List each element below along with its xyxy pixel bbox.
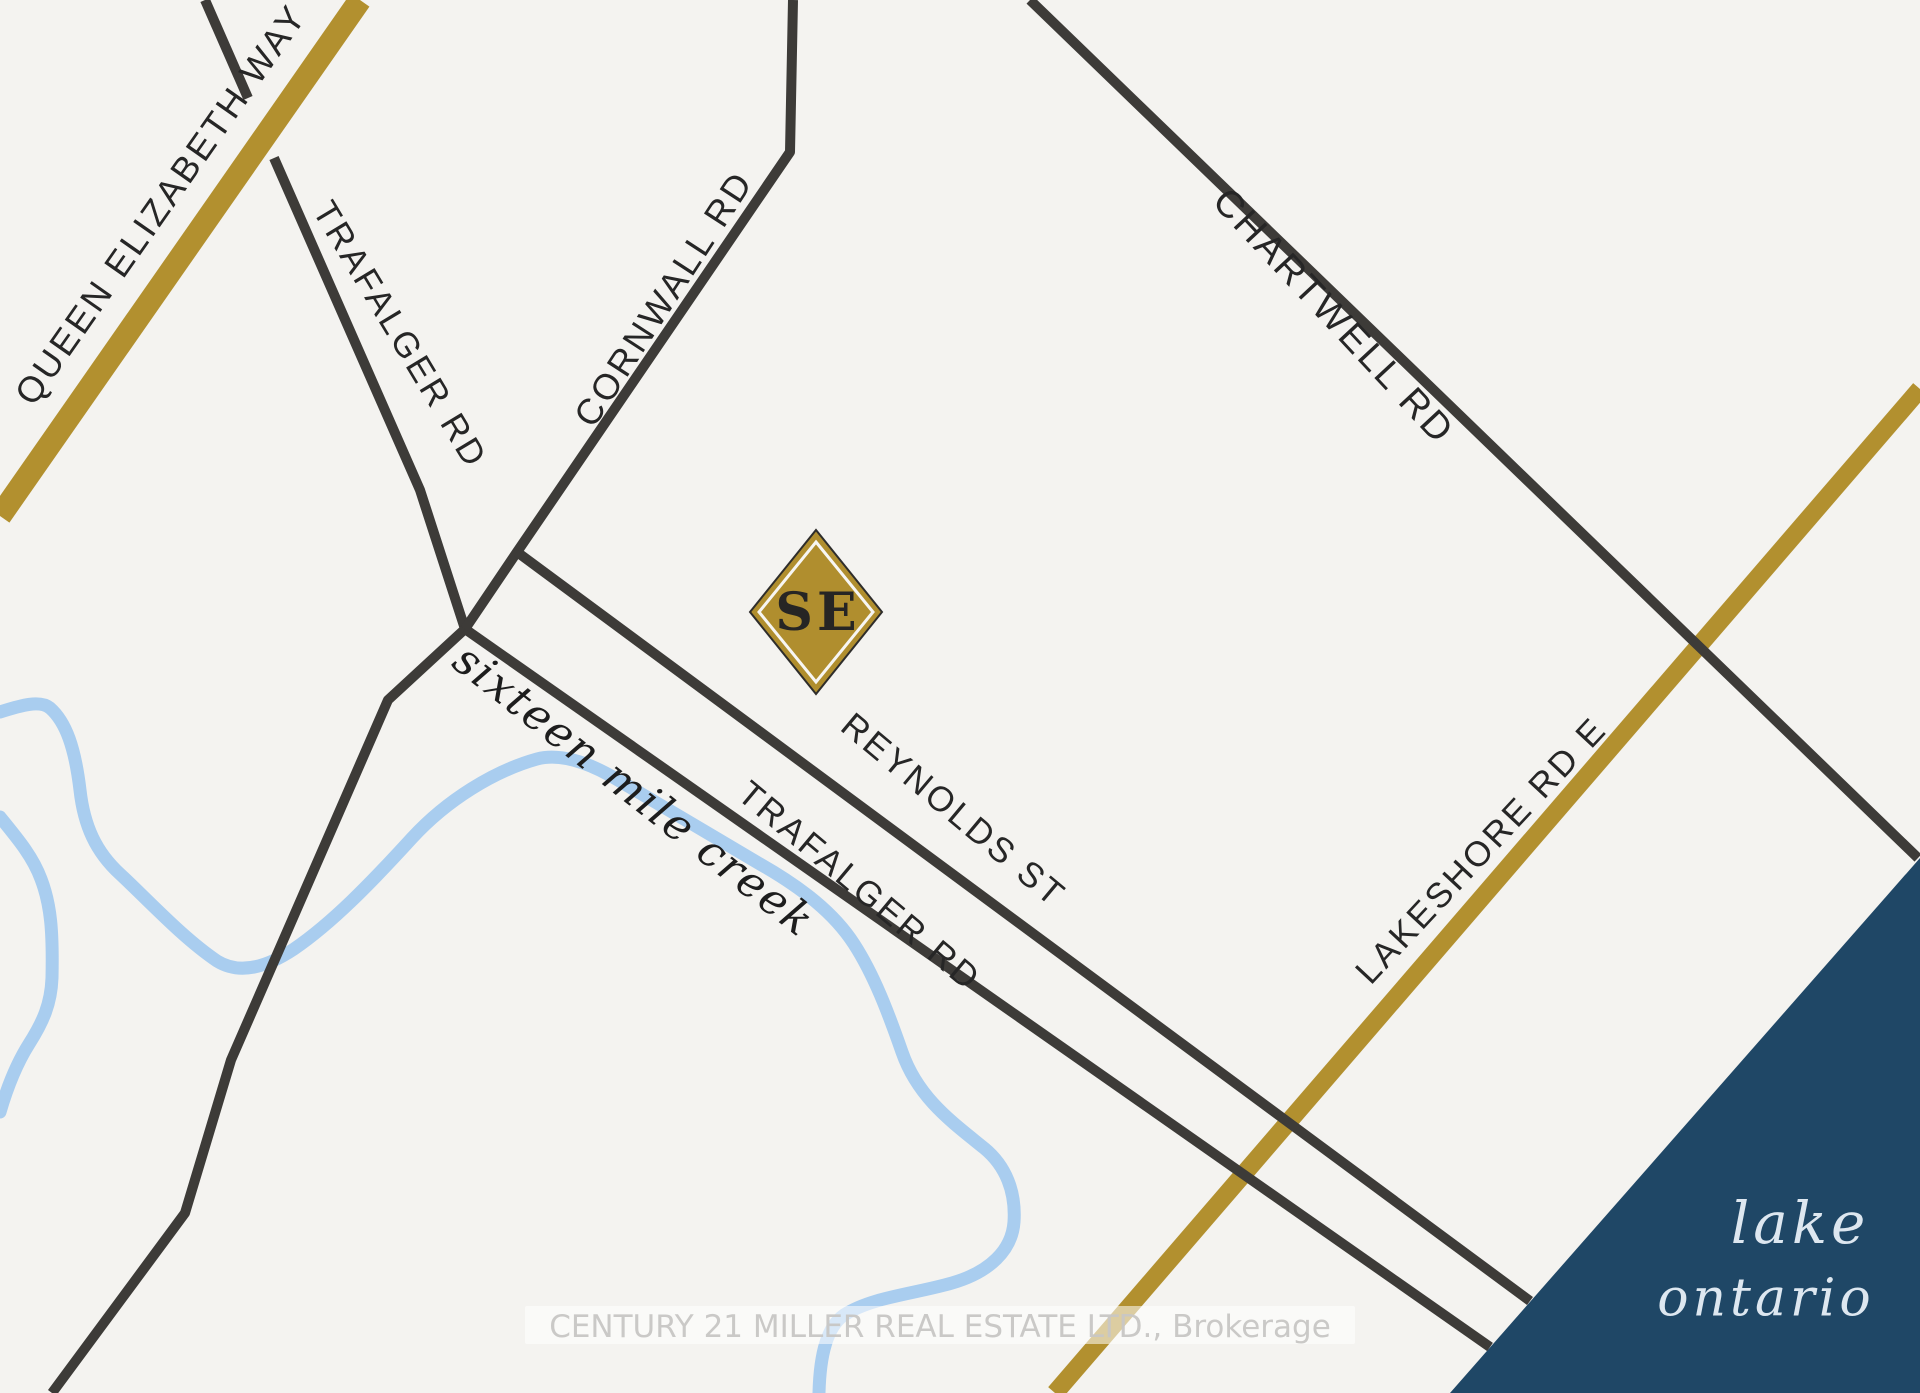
road-queen-elizabeth-way: [0, 0, 360, 516]
marker-initials: SE: [775, 582, 860, 643]
label-queen-elizabeth-way: QUEEN ELIZABETH WAY: [6, 0, 314, 412]
watermark-text: CENTURY 21 MILLER REAL ESTATE LTD., Brok…: [549, 1309, 1331, 1345]
road-trafalgar-southeast: [465, 629, 1490, 1347]
label-lakeshore-rd-e: LAKESHORE RD E: [1348, 709, 1615, 991]
label-ontario: ontario: [1657, 1269, 1875, 1329]
map-page: QUEEN ELIZABETH WAY TRAFALGER RD CORNWAL…: [0, 0, 1920, 1393]
label-chartwell-rd: CHARTWELL RD: [1204, 180, 1462, 453]
road-chartwell: [1030, 0, 1918, 858]
label-cornwall-rd: CORNWALL RD: [566, 163, 762, 434]
road-trafalgar-south: [52, 629, 465, 1393]
creek-branch: [0, 817, 52, 1112]
label-lake: lake: [1731, 1189, 1870, 1257]
road-reynolds: [517, 552, 1530, 1301]
brokerage-watermark: CENTURY 21 MILLER REAL ESTATE LTD., Brok…: [525, 1306, 1355, 1345]
map-canvas: QUEEN ELIZABETH WAY TRAFALGER RD CORNWAL…: [0, 0, 1920, 1393]
property-marker-diamond: SE: [750, 530, 882, 694]
